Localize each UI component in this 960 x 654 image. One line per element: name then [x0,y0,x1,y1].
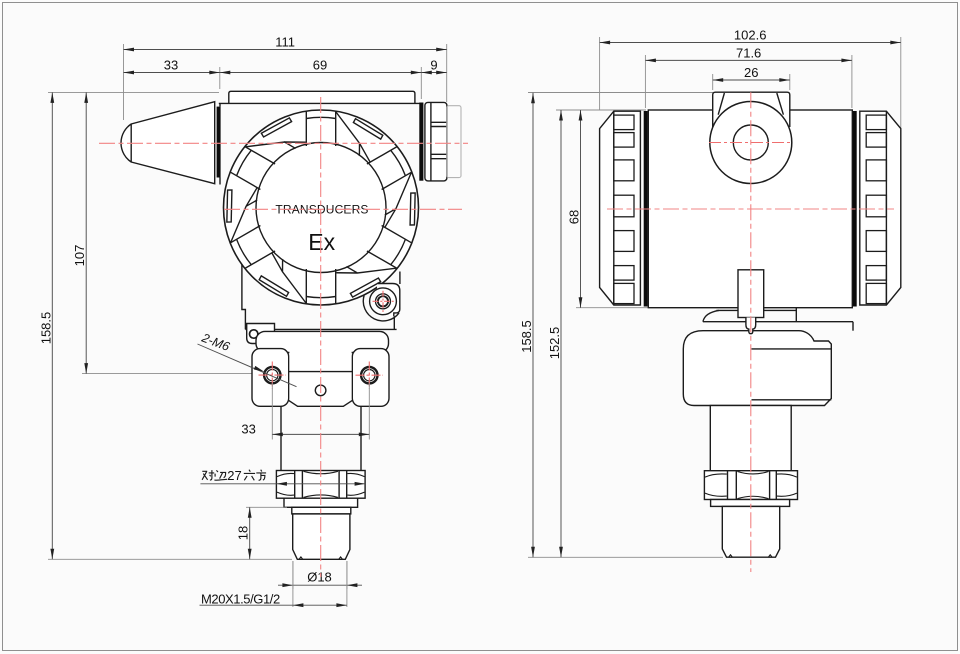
svg-text:102.6: 102.6 [734,28,767,43]
svg-text:33: 33 [241,421,255,436]
svg-text:111: 111 [275,35,295,50]
svg-text:158.5: 158.5 [519,320,534,353]
svg-text:Ex: Ex [308,229,335,255]
svg-text:9: 9 [430,58,437,73]
svg-text:71.6: 71.6 [736,45,761,60]
svg-text:26: 26 [744,65,758,80]
svg-text:107: 107 [72,245,87,267]
svg-text:158.5: 158.5 [38,312,53,345]
svg-text:Ø18: Ø18 [307,570,332,585]
svg-text:18: 18 [236,526,251,540]
svg-text:27: 27 [227,468,241,483]
svg-text:69: 69 [313,58,327,73]
svg-text:152.5: 152.5 [547,327,562,360]
svg-text:68: 68 [567,210,582,224]
svg-text:33: 33 [164,58,178,73]
svg-text:M20X1.5/G1/2: M20X1.5/G1/2 [201,591,280,606]
